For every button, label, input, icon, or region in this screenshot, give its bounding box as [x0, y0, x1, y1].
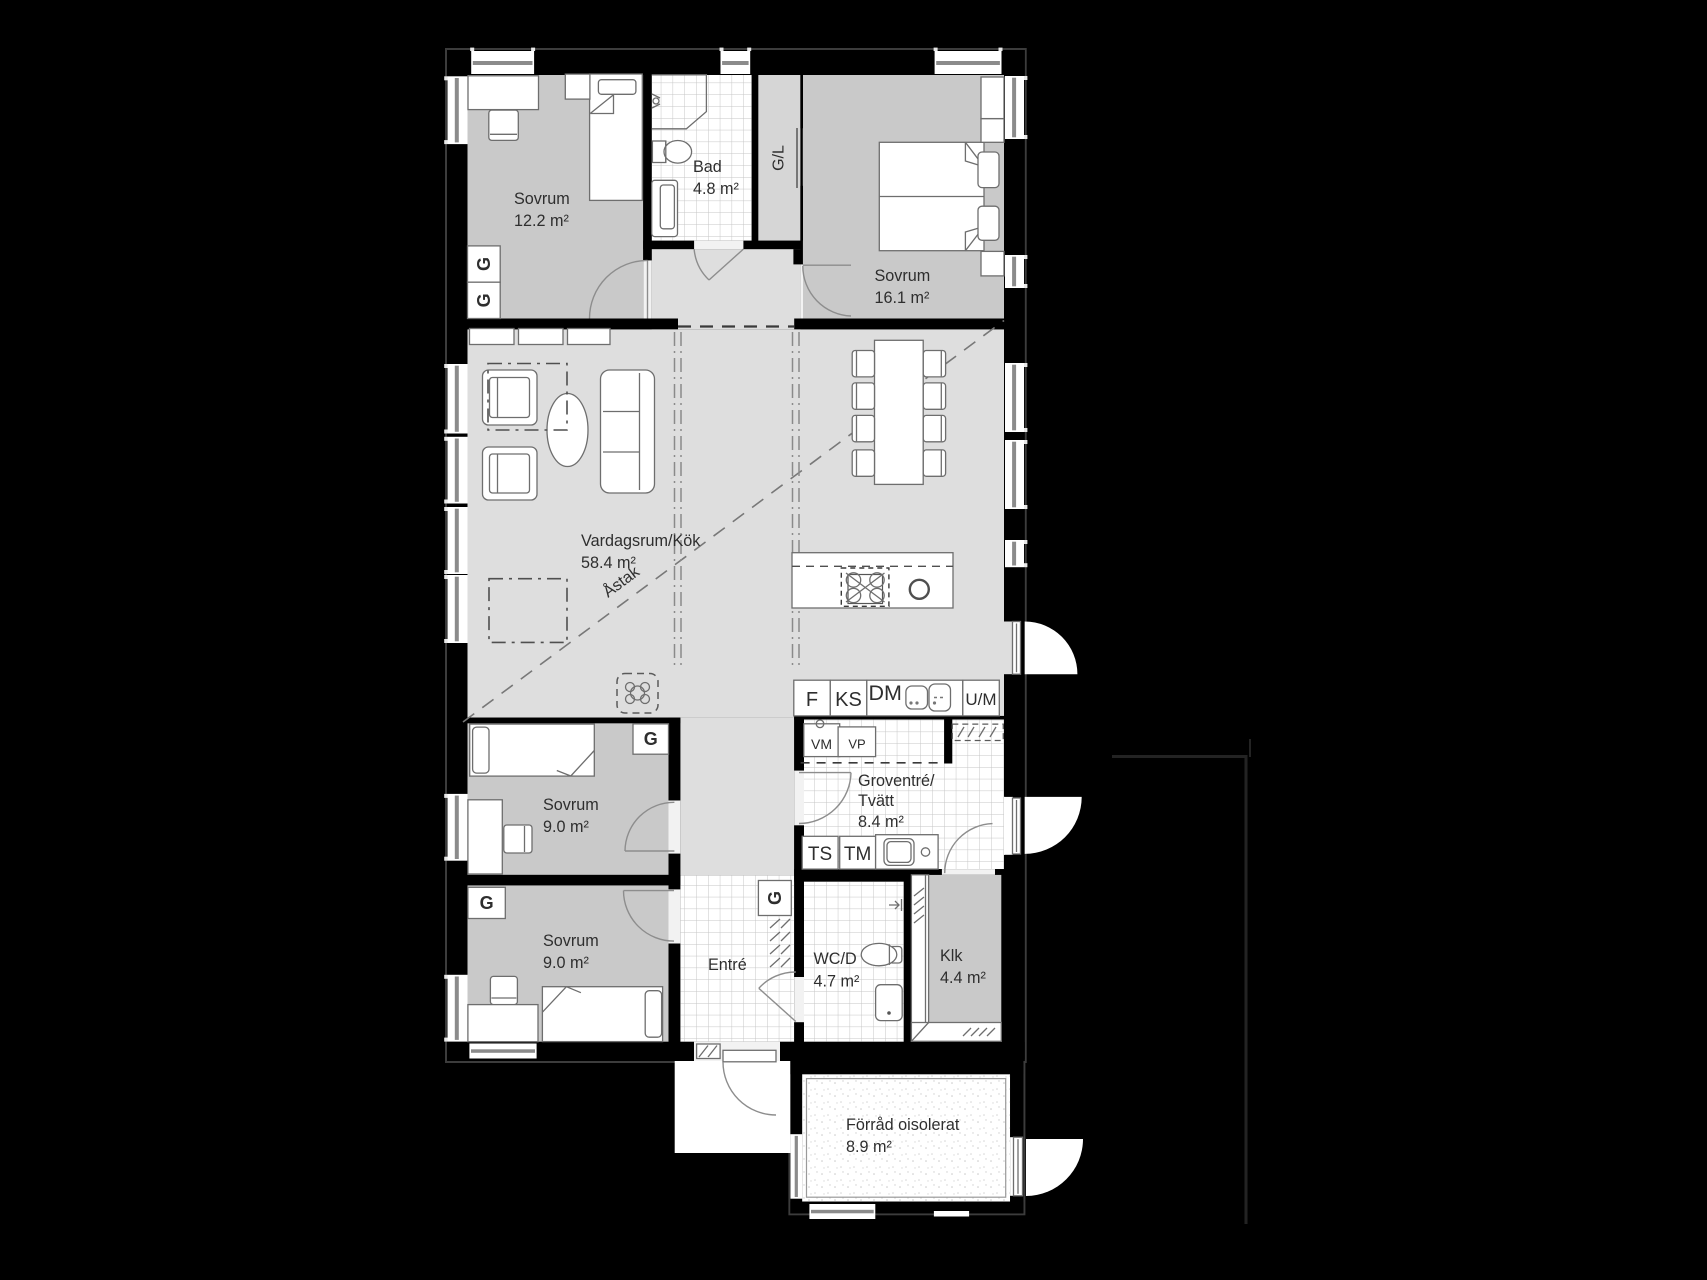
svg-text:WC/D: WC/D	[814, 950, 857, 968]
svg-text:Bad: Bad	[693, 158, 722, 176]
svg-text:Entré: Entré	[708, 956, 747, 974]
svg-text:KS: KS	[835, 689, 862, 711]
svg-text:Förråd oisolerat: Förråd oisolerat	[846, 1116, 960, 1134]
svg-text:G: G	[474, 257, 494, 271]
svg-text:8.4 m²: 8.4 m²	[858, 813, 904, 831]
svg-text:TM: TM	[844, 844, 871, 865]
svg-text:G: G	[474, 293, 494, 307]
svg-text:G/L: G/L	[771, 145, 788, 171]
svg-text:Vardagsrum/Kök: Vardagsrum/Kök	[581, 532, 701, 550]
svg-text:G: G	[644, 729, 658, 749]
svg-text:TS: TS	[808, 844, 832, 865]
svg-text:4.7 m²: 4.7 m²	[814, 973, 860, 991]
svg-text:Sovrum: Sovrum	[514, 190, 570, 208]
svg-text:4.8 m²: 4.8 m²	[693, 180, 739, 198]
svg-text:Klk: Klk	[940, 947, 963, 965]
svg-text:G: G	[765, 891, 785, 905]
svg-text:Sovrum: Sovrum	[875, 267, 931, 285]
svg-text:Sovrum: Sovrum	[543, 932, 599, 950]
svg-text:Tvätt: Tvätt	[858, 792, 894, 810]
svg-text:F: F	[806, 689, 818, 711]
svg-text:12.2 m²: 12.2 m²	[514, 212, 569, 230]
svg-text:U/M: U/M	[965, 690, 996, 709]
svg-text:VM: VM	[811, 736, 832, 752]
svg-text:8.9 m²: 8.9 m²	[846, 1138, 892, 1156]
svg-text:Groventré/: Groventré/	[858, 772, 935, 790]
svg-text:9.0 m²: 9.0 m²	[543, 954, 589, 972]
svg-text:4.4 m²: 4.4 m²	[940, 969, 986, 987]
svg-text:G: G	[480, 893, 494, 913]
svg-text:16.1 m²: 16.1 m²	[875, 289, 930, 307]
svg-text:DM: DM	[869, 681, 902, 705]
svg-text:9.0 m²: 9.0 m²	[543, 818, 589, 836]
svg-text:VP: VP	[848, 737, 865, 752]
svg-text:Sovrum: Sovrum	[543, 796, 599, 814]
